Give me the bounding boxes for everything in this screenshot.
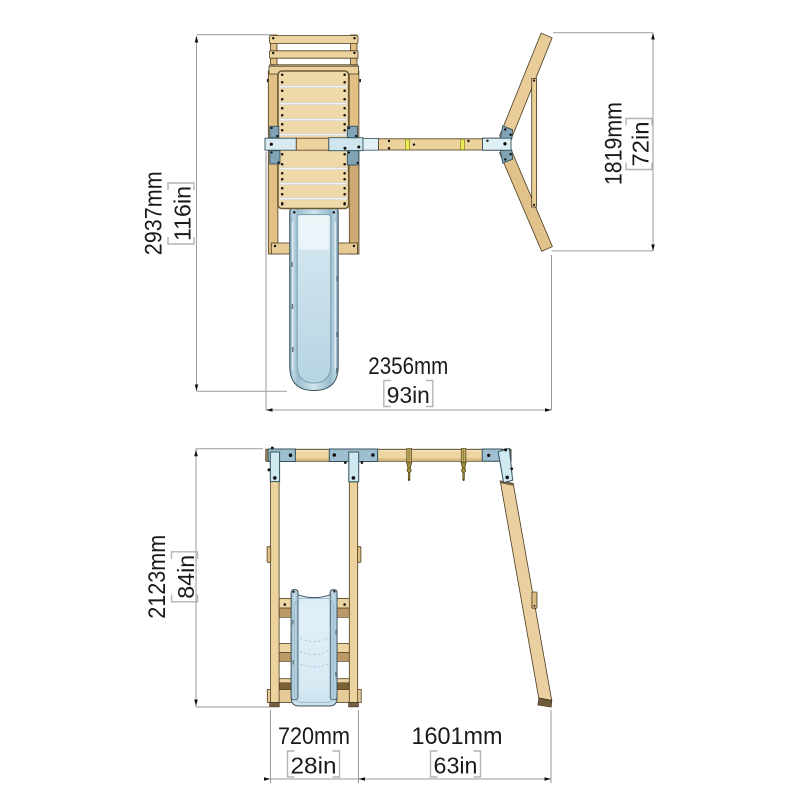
- svg-text:28in: 28in: [291, 753, 337, 779]
- svg-text:2356mm: 2356mm: [368, 353, 448, 380]
- svg-text:72in: 72in: [628, 122, 654, 167]
- svg-text:116in: 116in: [170, 186, 196, 241]
- svg-text:1601mm: 1601mm: [412, 723, 503, 750]
- svg-text:2937mm: 2937mm: [141, 171, 168, 255]
- svg-text:93in: 93in: [387, 382, 430, 408]
- svg-text:2123mm: 2123mm: [144, 535, 171, 619]
- svg-text:63in: 63in: [434, 753, 478, 779]
- svg-text:1819mm: 1819mm: [601, 102, 628, 185]
- svg-text:84in: 84in: [173, 555, 199, 599]
- svg-text:720mm: 720mm: [278, 723, 350, 750]
